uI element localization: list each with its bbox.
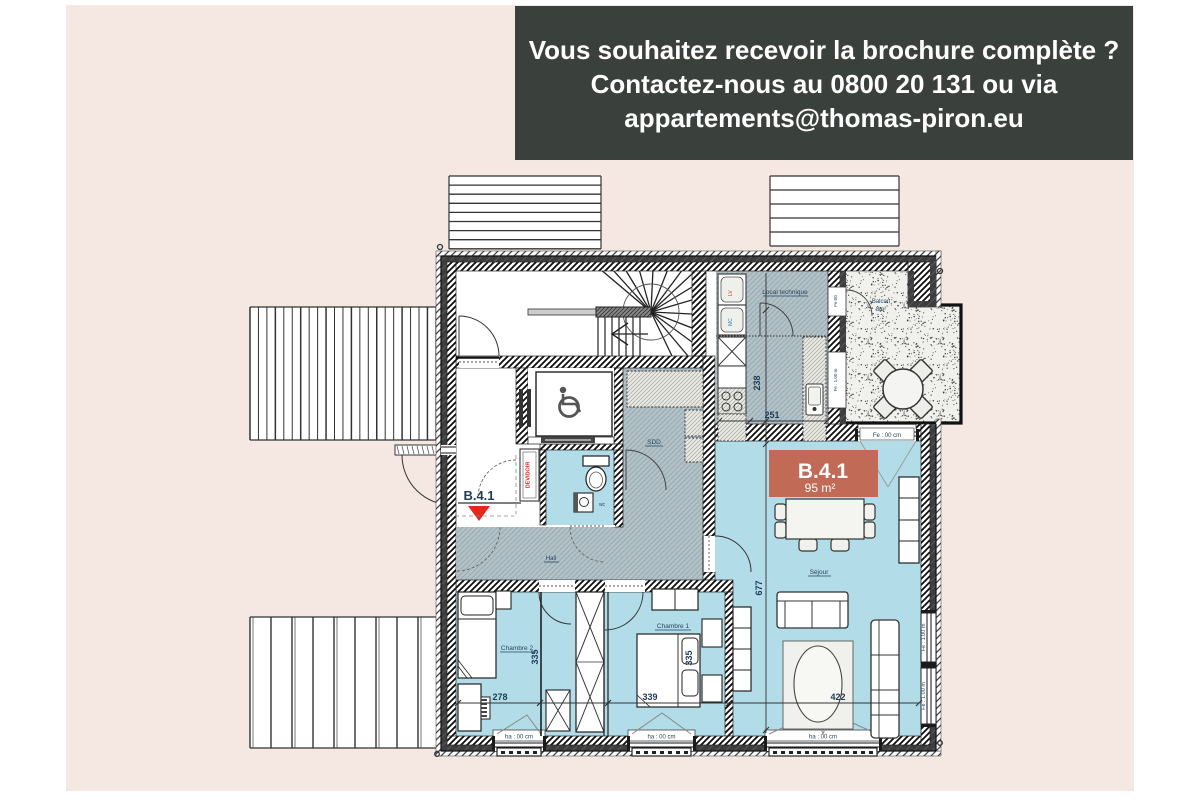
svg-text:wc: wc xyxy=(599,502,606,508)
svg-text:8m²: 8m² xyxy=(876,307,886,313)
svg-text:ha : 00 cm: ha : 00 cm xyxy=(647,735,675,741)
svg-text:Fe : 1.00 m: Fe : 1.00 m xyxy=(921,682,927,710)
svg-text:335: 335 xyxy=(530,649,540,664)
svg-text:SDD: SDD xyxy=(647,439,661,446)
svg-text:Séjour: Séjour xyxy=(810,569,830,576)
svg-text:238: 238 xyxy=(752,375,762,390)
svg-text:Local technique: Local technique xyxy=(762,289,808,296)
svg-text:95 m²: 95 m² xyxy=(805,481,836,495)
svg-text:Fe : 00 cm: Fe : 00 cm xyxy=(873,433,901,439)
svg-text:Chambre 1: Chambre 1 xyxy=(657,623,690,630)
svg-text:Fe : 1.00 m: Fe : 1.00 m xyxy=(833,368,838,391)
svg-text:339: 339 xyxy=(642,692,657,702)
svg-text:Balcon: Balcon xyxy=(872,299,890,305)
svg-text:Fe : 1.00 m: Fe : 1.00 m xyxy=(921,623,927,651)
svg-text:422: 422 xyxy=(830,692,845,702)
svg-text:ha : 00 cm: ha : 00 cm xyxy=(809,735,837,741)
svg-text:Chambre 2: Chambre 2 xyxy=(501,645,534,652)
svg-text:Hall: Hall xyxy=(546,556,556,562)
svg-text:MC: MC xyxy=(728,318,734,326)
svg-text:251: 251 xyxy=(764,410,779,420)
svg-text:DEVIDOIR: DEVIDOIR xyxy=(526,462,532,489)
svg-text:Fe:00: Fe:00 xyxy=(833,295,838,307)
svg-text:278: 278 xyxy=(492,692,507,702)
svg-text:677: 677 xyxy=(754,580,764,595)
svg-text:LV: LV xyxy=(728,289,734,295)
svg-text:ha : 00 cm: ha : 00 cm xyxy=(505,735,533,741)
svg-text:B.4.1: B.4.1 xyxy=(798,460,849,483)
svg-text:335: 335 xyxy=(684,650,694,665)
